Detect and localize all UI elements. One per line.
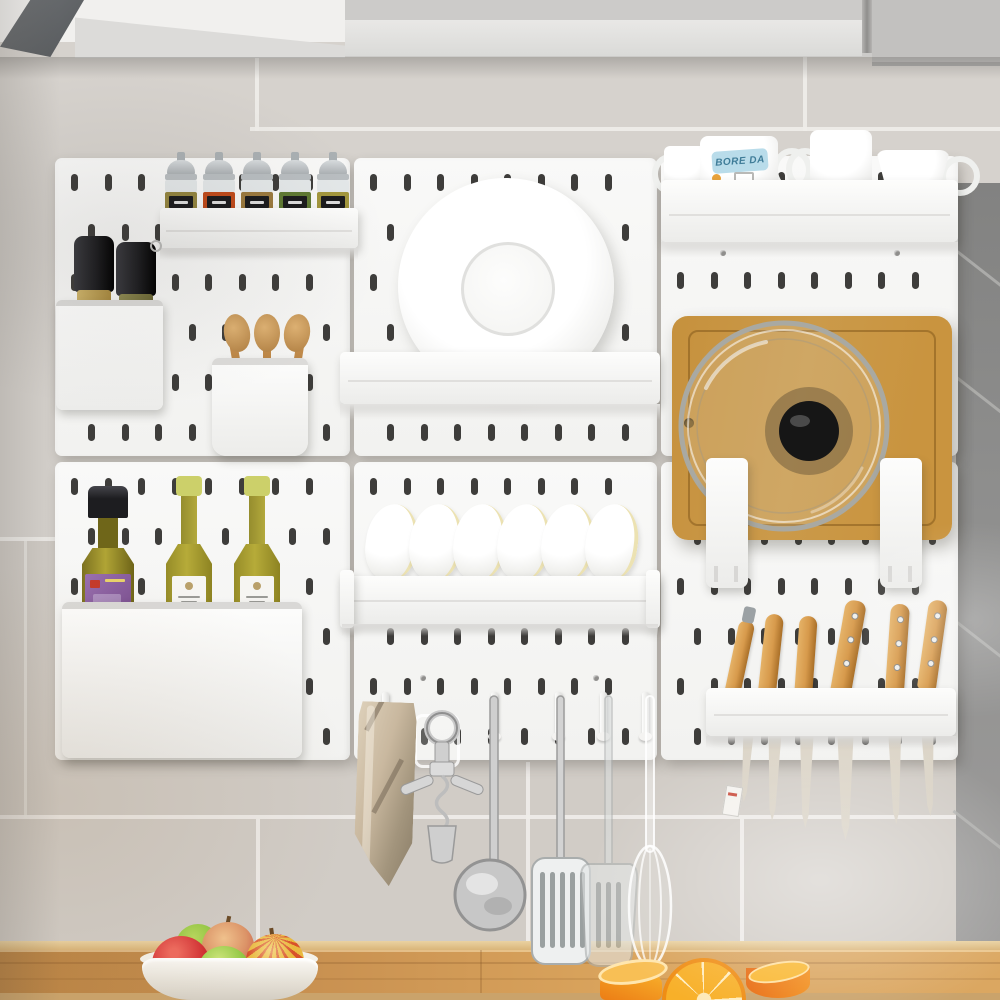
panel-screw xyxy=(593,675,599,681)
pegboard-hole xyxy=(622,224,629,241)
pegboard-hole xyxy=(555,424,562,441)
bracket-slot xyxy=(734,566,738,582)
mug-tall xyxy=(810,130,872,184)
pegboard-hole xyxy=(677,272,684,289)
tile-grout-line xyxy=(740,819,744,945)
oil-bottle-neck xyxy=(249,496,265,546)
pegboard-hole xyxy=(504,478,511,495)
jar-label-text xyxy=(288,201,302,204)
jar-glass xyxy=(165,180,197,192)
jar-label xyxy=(245,196,269,208)
upper-cabinet-band xyxy=(345,20,862,56)
pegboard-hole xyxy=(138,578,145,595)
pegboard-hole xyxy=(370,274,377,291)
jar-glass xyxy=(317,180,349,192)
jar-glass xyxy=(241,180,273,192)
rail-groove xyxy=(350,600,650,602)
label-text-line xyxy=(246,596,268,598)
pegboard-hole xyxy=(189,324,196,341)
pegboard-hole xyxy=(122,424,129,441)
pegboard-hole xyxy=(71,174,78,191)
plate-base-ring xyxy=(461,242,555,336)
cabinet-door-seam xyxy=(862,0,872,53)
panel-screw xyxy=(894,250,900,256)
handle-rivet xyxy=(893,664,900,671)
tile-grout-line xyxy=(0,537,58,541)
label-art xyxy=(105,579,125,582)
pegboard-hole xyxy=(306,478,313,495)
tile-grout-line xyxy=(256,819,260,945)
rail-groove xyxy=(714,714,948,716)
pegboard-hole xyxy=(323,424,330,441)
bracket-slot xyxy=(888,566,892,582)
ladle xyxy=(448,690,532,938)
oil-bottle-cap xyxy=(244,476,270,496)
pegboard-hole xyxy=(828,628,835,645)
jar-label-text xyxy=(250,201,264,204)
pegboard-hole xyxy=(677,678,684,695)
bin-rim xyxy=(62,602,302,609)
pegboard-hole xyxy=(306,678,313,695)
pegboard-hole xyxy=(172,274,179,291)
pegboard-hole xyxy=(155,424,162,441)
mug-bore-da: BORE DA xyxy=(700,136,778,184)
handle-rivet xyxy=(895,640,902,647)
lid-holder-bracket xyxy=(880,458,922,588)
pegboard-hole xyxy=(205,374,212,391)
pegboard-hole xyxy=(138,174,145,191)
handle-rivet xyxy=(851,612,859,620)
tile-grout-line xyxy=(24,540,27,818)
pegboard-hole xyxy=(811,578,818,595)
pegboard-hole xyxy=(571,174,578,191)
dish-rack-cap xyxy=(340,570,354,628)
jar-label-text xyxy=(174,201,188,204)
grinder-bin xyxy=(56,300,163,410)
pegboard-hole xyxy=(744,272,751,289)
jar-label xyxy=(321,196,345,208)
spice-jar xyxy=(315,152,351,214)
oil-bottle-cap-black xyxy=(88,486,128,518)
teacup xyxy=(876,150,950,184)
knife-rack xyxy=(706,688,956,736)
mug-shelf-lip xyxy=(661,242,958,258)
oil-bottle-neck xyxy=(181,496,197,546)
handle-rivet xyxy=(927,660,935,668)
pegboard-hole xyxy=(387,424,394,441)
counter-front-edge xyxy=(0,993,1000,1000)
pegboard-hole xyxy=(778,578,785,595)
shelf-groove xyxy=(669,214,950,216)
pegboard-hole xyxy=(571,478,578,495)
oil-bottle-cap xyxy=(176,476,202,496)
dish-rack-rail xyxy=(342,576,658,624)
pegboard-hole xyxy=(387,324,394,341)
dark-side-tiles xyxy=(956,183,1000,943)
fruit-bowl xyxy=(142,958,318,1000)
pegboard-hole xyxy=(323,324,330,341)
pegboard-hole xyxy=(404,678,411,695)
spice-jar xyxy=(239,152,275,214)
jar-label xyxy=(283,196,307,208)
kitchen-pegboard-scene: BORE DA xyxy=(0,0,1000,1000)
pegboard-hole xyxy=(370,174,377,191)
pegboard-hole xyxy=(323,528,330,545)
panel-screw xyxy=(420,675,426,681)
pegboard-hole xyxy=(122,528,129,545)
pegboard-hole xyxy=(306,274,313,291)
shelf-groove xyxy=(348,380,652,382)
jar-glass xyxy=(203,180,235,192)
pegboard-hole xyxy=(862,628,869,645)
oil-bottle-neck xyxy=(98,518,118,550)
pegboard-hole xyxy=(421,424,428,441)
lid-holder-bracket xyxy=(706,458,748,588)
pegboard-hole xyxy=(370,678,377,695)
pegboard-hole xyxy=(387,224,394,241)
bottle-bin xyxy=(62,602,302,758)
pepper-grinder-cap xyxy=(116,242,156,296)
pegboard-hole xyxy=(711,272,718,289)
dish-rack-cap xyxy=(646,570,660,628)
pegboard-hole xyxy=(272,478,279,495)
handle-rivet xyxy=(843,659,851,667)
pegboard-hole xyxy=(622,424,629,441)
jar-label xyxy=(169,196,193,208)
pegboard-hole xyxy=(323,728,330,745)
grinder-ring xyxy=(150,240,162,252)
spice-jar xyxy=(277,152,313,214)
pegboard-hole xyxy=(155,528,162,545)
pegboard-hole xyxy=(811,272,818,289)
jar-label xyxy=(207,196,231,208)
pegboard-hole xyxy=(588,424,595,441)
pegboard-hole xyxy=(88,528,95,545)
pegboard-hole xyxy=(878,272,885,289)
tile-grout-line xyxy=(250,127,1000,131)
jar-label-text xyxy=(326,201,340,204)
whisk xyxy=(622,694,678,974)
pepper-grinder-cap xyxy=(74,236,114,292)
bin-rim xyxy=(56,300,163,306)
pegboard-hole xyxy=(471,478,478,495)
pegboard-hole xyxy=(105,174,112,191)
pegboard-hole xyxy=(172,374,179,391)
pegboard-hole xyxy=(239,274,246,291)
pegboard-hole xyxy=(404,174,411,191)
pegboard-hole xyxy=(289,528,296,545)
pegboard-hole xyxy=(488,424,495,441)
pegboard-hole xyxy=(728,628,735,645)
pegboard-hole xyxy=(71,478,78,495)
pegboard-hole xyxy=(437,478,444,495)
wooden-spoon-head xyxy=(254,314,280,352)
spice-jar xyxy=(163,152,199,214)
pegboard-hole xyxy=(845,272,852,289)
jar-label-text xyxy=(212,201,226,204)
pegboard-hole xyxy=(88,424,95,441)
shelf-groove xyxy=(166,230,352,232)
pegboard-hole xyxy=(370,478,377,495)
label-art xyxy=(90,580,100,588)
pegboard-hole xyxy=(677,578,684,595)
bracket-slot xyxy=(908,566,912,582)
pegboard-hole xyxy=(912,272,919,289)
pegboard-hole xyxy=(205,478,212,495)
spice-shelf xyxy=(160,208,358,248)
jar-glass xyxy=(279,180,311,192)
pegboard-hole xyxy=(605,478,612,495)
handle-rivet xyxy=(847,636,855,644)
pegboard-hole xyxy=(122,224,129,241)
pegboard-hole xyxy=(306,578,313,595)
spice-jar xyxy=(201,152,237,214)
wood-grain xyxy=(480,950,482,993)
label-crest xyxy=(185,582,193,590)
pegboard-hole xyxy=(845,578,852,595)
dish-rack-shadow xyxy=(342,624,658,636)
cup-rim xyxy=(212,358,308,365)
pegboard-hole xyxy=(71,578,78,595)
knife-rack-shadow xyxy=(706,736,956,748)
pegboard-hole xyxy=(272,274,279,291)
mug-shelf xyxy=(661,180,958,242)
cabinet-shadow xyxy=(0,57,1000,79)
dark-tile-grout xyxy=(952,374,1000,419)
pegboard-hole xyxy=(622,324,629,341)
pegboard-hole xyxy=(454,424,461,441)
pegboard-hole xyxy=(778,272,785,289)
pegboard-hole xyxy=(437,174,444,191)
pegboard-hole xyxy=(205,274,212,291)
pegboard-hole xyxy=(404,478,411,495)
label-text-line xyxy=(178,596,200,598)
pegboard-hole xyxy=(437,678,444,695)
pegboard-hole xyxy=(538,478,545,495)
bracket-slot xyxy=(714,566,718,582)
mug-label: BORE DA xyxy=(711,148,768,174)
pegboard-hole xyxy=(521,424,528,441)
panel-screw xyxy=(720,250,726,256)
plate-shelf-lip xyxy=(340,404,660,420)
label-crest xyxy=(253,582,261,590)
pegboard-hole xyxy=(323,628,330,645)
handle-rivet xyxy=(934,612,942,620)
plate-shelf xyxy=(340,352,660,404)
pegboard-hole xyxy=(189,424,196,441)
tag-mark xyxy=(728,792,737,796)
pegboard-hole xyxy=(694,628,701,645)
pegboard-hole xyxy=(222,528,229,545)
pegboard-hole xyxy=(138,478,145,495)
pegboard-hole xyxy=(605,174,612,191)
spice-shelf-lip xyxy=(160,248,358,260)
handle-rivet xyxy=(930,636,938,644)
utensil-cup xyxy=(212,358,308,456)
dark-tile-grout xyxy=(952,810,1000,855)
handle-rivet xyxy=(897,616,904,623)
pegboard-hole xyxy=(694,728,701,745)
